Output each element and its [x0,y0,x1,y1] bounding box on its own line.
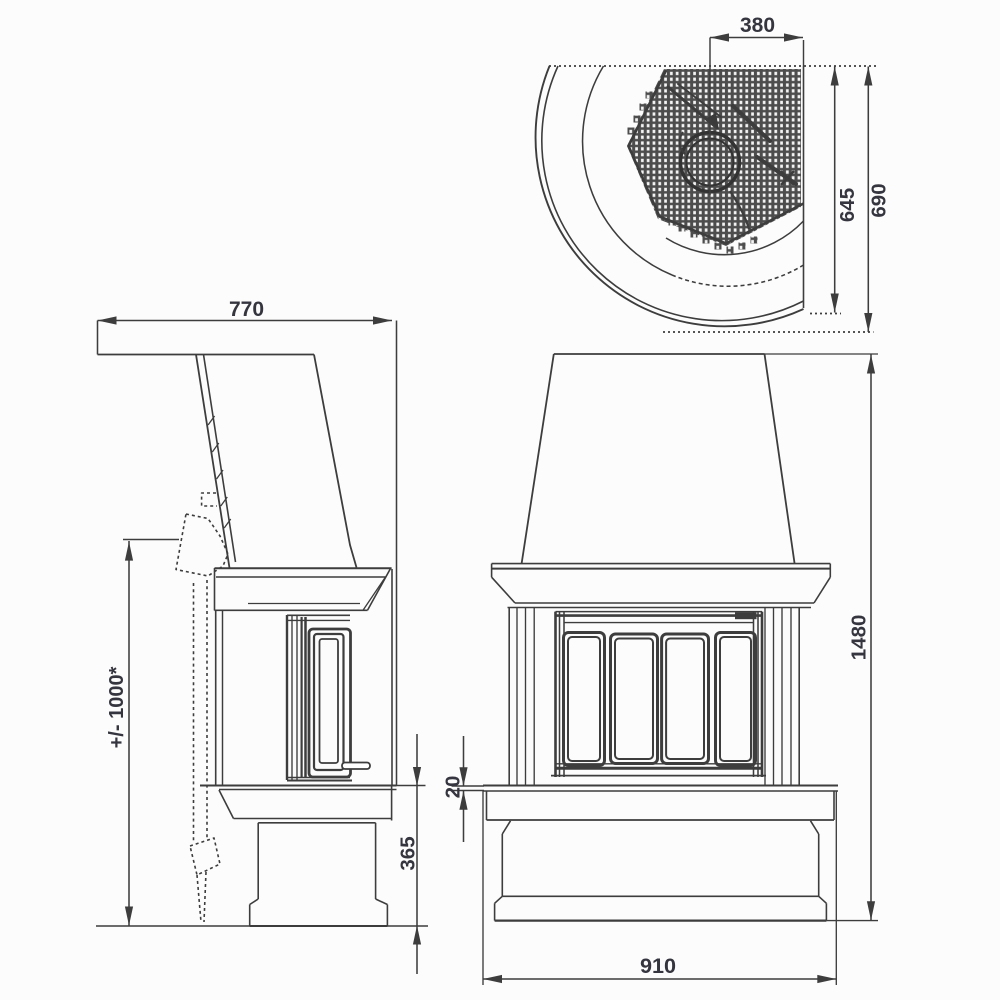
svg-text:380: 380 [740,14,775,37]
svg-text:645: 645 [836,188,859,222]
svg-text:20: 20 [442,776,465,799]
svg-text:770: 770 [229,298,264,321]
svg-text:910: 910 [640,953,676,978]
svg-text:1480: 1480 [847,615,870,661]
svg-text:+/- 1000*: +/- 1000* [106,666,128,748]
svg-text:365: 365 [397,836,420,870]
svg-text:690: 690 [868,183,891,217]
